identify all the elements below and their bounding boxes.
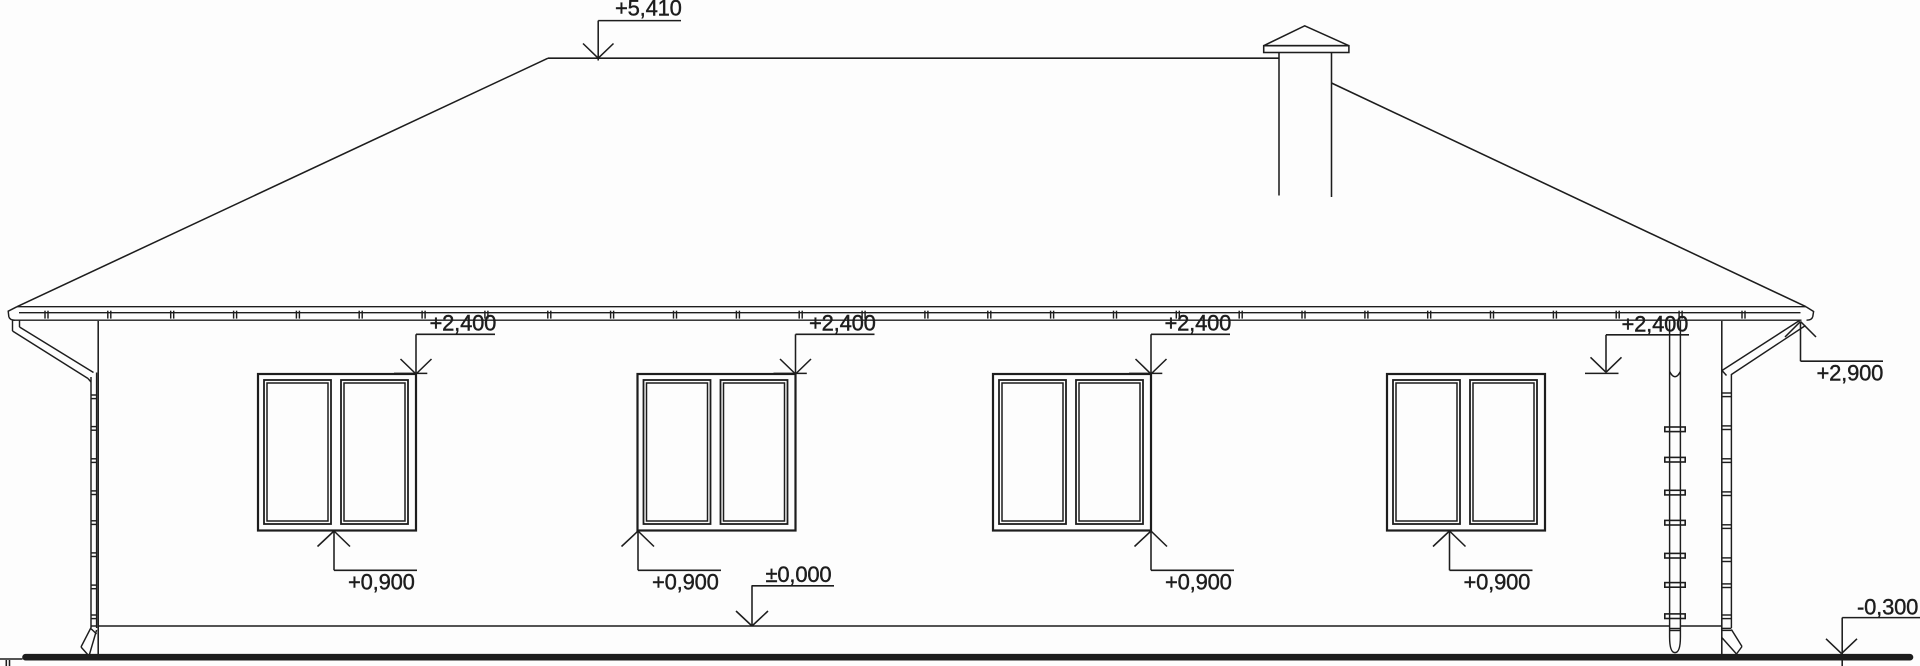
svg-text:-0,300: -0,300 xyxy=(1857,595,1918,620)
svg-text:+0,900: +0,900 xyxy=(1464,570,1531,595)
svg-text:+5,410: +5,410 xyxy=(615,0,682,21)
svg-text:+0,900: +0,900 xyxy=(1165,570,1232,595)
svg-text:+0,900: +0,900 xyxy=(348,570,415,595)
svg-text:+0,900: +0,900 xyxy=(652,570,719,595)
svg-text:+2,400: +2,400 xyxy=(430,311,497,336)
svg-text:+2,400: +2,400 xyxy=(1622,312,1689,337)
svg-text:±0,000: ±0,000 xyxy=(766,562,832,587)
svg-text:+2,900: +2,900 xyxy=(1817,361,1884,386)
svg-text:+2,400: +2,400 xyxy=(1165,311,1232,336)
svg-text:+2,400: +2,400 xyxy=(809,311,876,336)
